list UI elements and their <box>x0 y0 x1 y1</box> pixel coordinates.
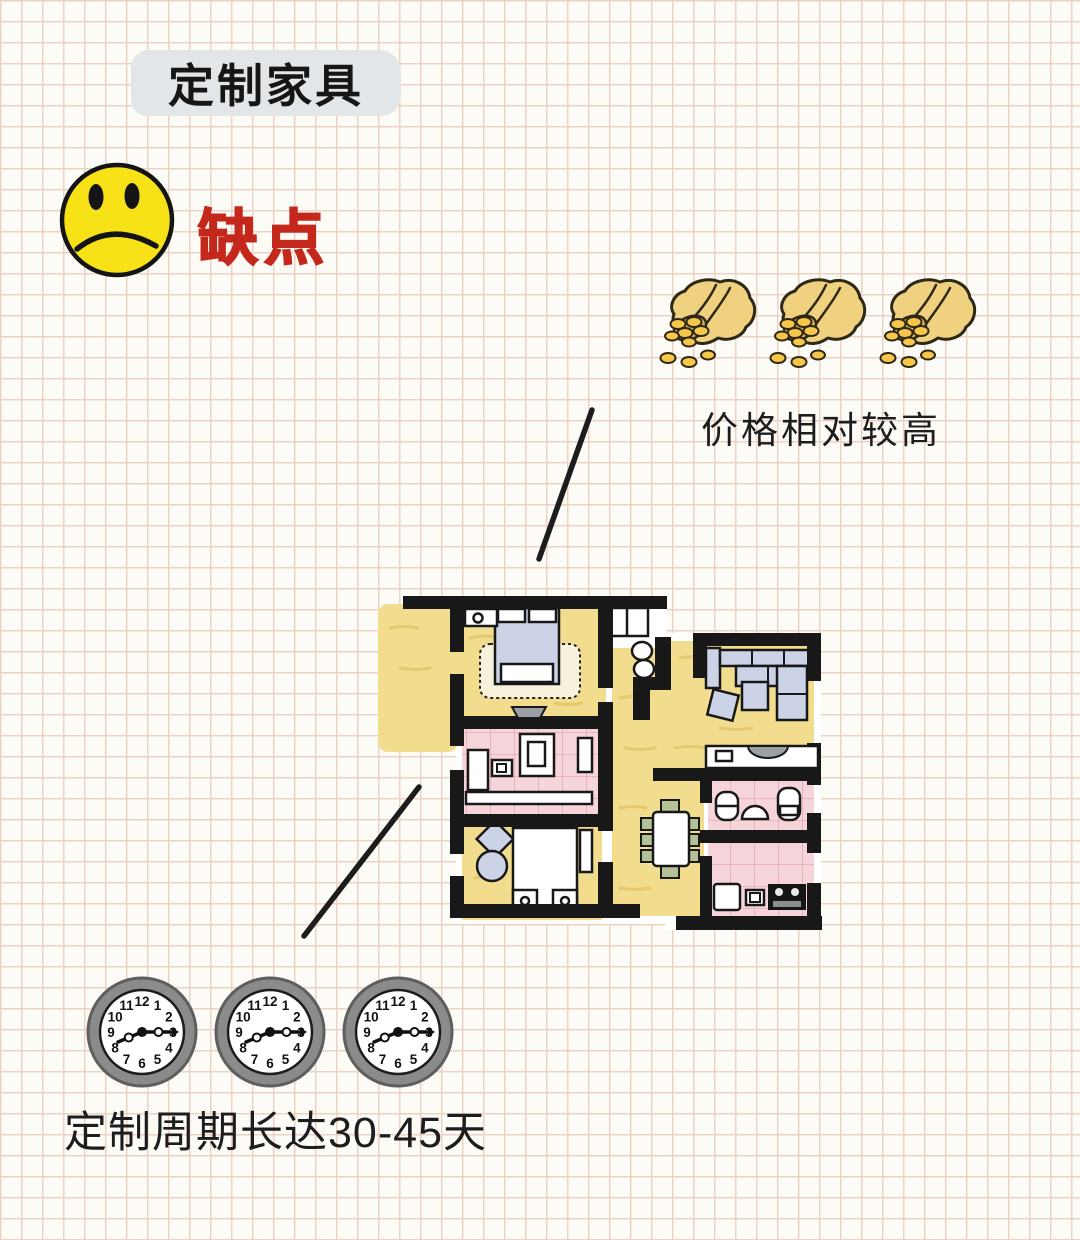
page-title: 定制家具 <box>168 50 364 116</box>
svg-text:4: 4 <box>421 1041 429 1056</box>
svg-text:7: 7 <box>379 1052 387 1067</box>
bedroom-floor-spill <box>378 604 458 752</box>
svg-text:7: 7 <box>123 1052 131 1067</box>
clock-icon: 121234567891011 <box>212 974 328 1090</box>
money-bags-illustration <box>648 270 993 382</box>
stool <box>477 851 507 881</box>
shower <box>520 734 554 776</box>
svg-text:4: 4 <box>165 1041 173 1056</box>
svg-text:5: 5 <box>154 1052 162 1067</box>
verdict-label: 缺点 <box>198 190 330 277</box>
svg-text:6: 6 <box>266 1056 274 1071</box>
svg-text:12: 12 <box>134 994 149 1009</box>
svg-text:11: 11 <box>375 998 390 1013</box>
svg-text:11: 11 <box>247 998 262 1013</box>
svg-text:5: 5 <box>410 1052 418 1067</box>
bathroom-cabinet <box>468 750 488 790</box>
price-caption: 价格相对较高 <box>650 400 992 454</box>
sofa-armrest <box>706 648 720 688</box>
duration-caption: 定制周期长达30-45天 <box>64 1098 487 1160</box>
svg-text:6: 6 <box>138 1056 146 1071</box>
floor-plan-illustration <box>370 578 850 948</box>
coffee-table <box>742 682 768 710</box>
svg-text:5: 5 <box>282 1052 290 1067</box>
page-title-highlight: 定制家具 <box>131 50 401 116</box>
svg-text:11: 11 <box>119 998 134 1013</box>
svg-text:6: 6 <box>394 1056 402 1071</box>
floor-cushion <box>707 689 739 721</box>
toilet <box>492 760 512 776</box>
svg-text:2: 2 <box>165 1010 173 1025</box>
wardrobe <box>580 830 592 872</box>
svg-text:12: 12 <box>262 994 277 1009</box>
fridge <box>714 884 740 910</box>
svg-text:9: 9 <box>363 1025 371 1040</box>
dining-table <box>653 812 689 866</box>
left-eye <box>89 184 104 210</box>
right-eye <box>125 183 140 209</box>
svg-text:1: 1 <box>154 998 162 1013</box>
svg-text:1: 1 <box>410 998 418 1013</box>
sofa-back <box>720 650 816 666</box>
vanity-sink <box>512 707 546 718</box>
svg-text:12: 12 <box>390 994 405 1009</box>
annotation-line-price <box>539 410 592 559</box>
entry-chair <box>634 660 654 678</box>
sad-face-icon <box>54 156 182 286</box>
bathroom-shelf <box>578 738 592 772</box>
svg-text:9: 9 <box>235 1025 243 1040</box>
clock-icon: 121234567891011 <box>340 974 456 1090</box>
bathroom-counter <box>466 792 592 804</box>
svg-text:2: 2 <box>421 1010 429 1025</box>
svg-text:2: 2 <box>293 1010 301 1025</box>
svg-text:9: 9 <box>107 1025 115 1040</box>
svg-text:7: 7 <box>251 1052 259 1067</box>
pillow <box>498 609 525 622</box>
pillow <box>529 609 556 622</box>
clock-icon: 121234567891011 <box>84 974 200 1090</box>
svg-text:4: 4 <box>293 1041 301 1056</box>
bed-foot-sheet <box>501 664 553 682</box>
svg-text:1: 1 <box>282 998 290 1013</box>
nightstand <box>465 609 497 626</box>
entry-chair <box>632 642 652 660</box>
